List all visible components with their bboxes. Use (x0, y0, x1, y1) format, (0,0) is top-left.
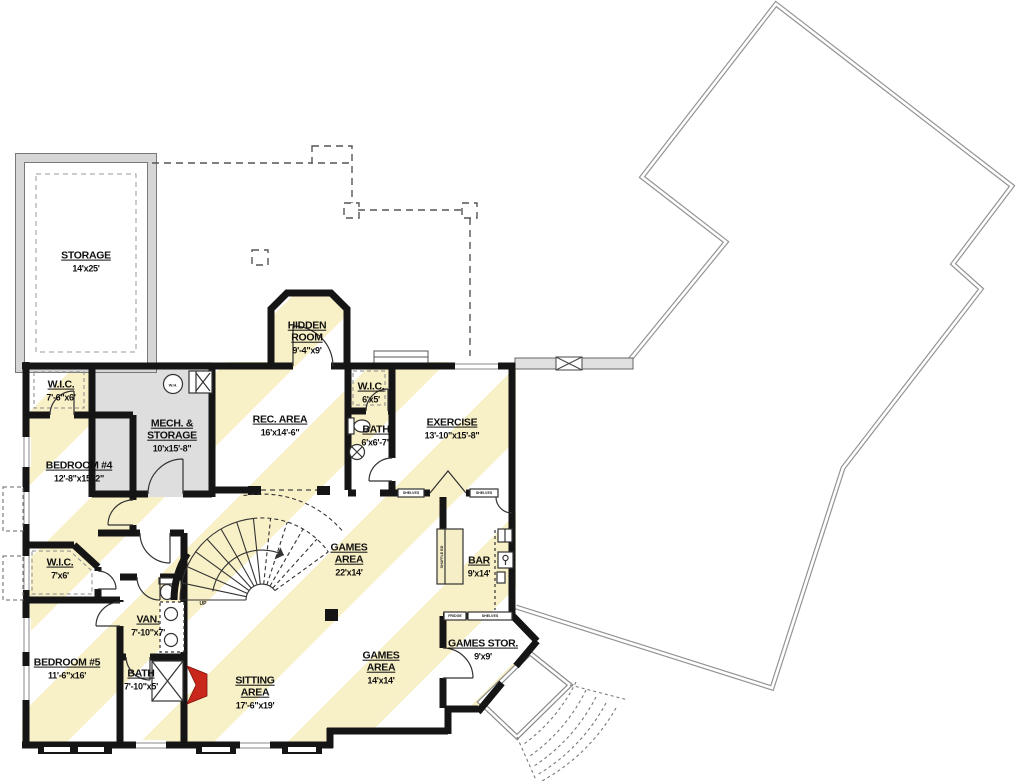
room-label-bath-2: BATH7'-10"x5' (124, 669, 158, 692)
room-dimensions: 13'-10"x15'-8" (425, 430, 480, 440)
room-dimensions: 9'x14' (468, 568, 491, 578)
room-label-bath-1: BATH6'x6'-7" (361, 425, 390, 448)
room-dimensions: 14'x14' (362, 675, 399, 685)
annotation-shelves-3: SHELVES (482, 614, 499, 618)
room-dimensions: 9'x9' (448, 651, 518, 661)
room-label-mech-storage: MECH. & STORAGE10'x15'-8" (147, 419, 197, 454)
room-label-wic-1: W.I.C.7'-6"x6' (46, 380, 75, 403)
room-label-rec-area: REC. AREA16'x14'-6" (253, 415, 308, 438)
room-dimensions: 10'x15'-8" (147, 443, 197, 453)
room-name: HIDDEN ROOM (288, 321, 326, 345)
room-dimensions: 17'-6"x19' (235, 700, 274, 710)
room-label-wic-2: W.I.C.6'x5' (358, 382, 385, 405)
room-name: BAR (468, 556, 491, 568)
room-name: MECH. & STORAGE (147, 419, 197, 443)
room-name: GAMES AREA (330, 543, 367, 567)
room-dimensions: 22'x14' (330, 567, 367, 577)
room-dimensions: 11'-6"x16' (34, 670, 100, 680)
room-label-games-area-2: GAMES AREA14'x14' (362, 651, 399, 686)
room-label-hidden-room: HIDDEN ROOM9'-4"x9' (288, 321, 326, 356)
room-labels-layer: STORAGE14'x25'HIDDEN ROOM9'-4"x9'W.I.C.7… (0, 0, 1024, 784)
room-name: BATH (124, 669, 158, 681)
room-name: GAMES STOR. (448, 639, 518, 651)
room-dimensions: 12'-8"x15'-2" (46, 473, 112, 483)
room-name: STORAGE (61, 251, 111, 263)
annotation-fridge: FRIDGE (448, 614, 462, 618)
room-name: BATH (361, 425, 390, 437)
room-name: GAMES AREA (362, 651, 399, 675)
room-label-storage: STORAGE14'x25' (61, 251, 111, 274)
room-dimensions: 7'-6"x6' (46, 392, 75, 402)
room-label-sitting-area: SITTING AREA17'-6"x19' (235, 676, 274, 711)
annotation-shuffleboard: SHUFFLE BD (440, 546, 444, 569)
room-name: W.I.C. (46, 380, 75, 392)
room-label-games-stor: GAMES STOR.9'x9' (448, 639, 518, 662)
room-label-bar: BAR9'x14' (468, 556, 491, 579)
annotation-water-heater: W.H. (169, 383, 178, 388)
room-dimensions: 6'x5' (358, 394, 385, 404)
room-dimensions: 7'-10"x7' (131, 627, 165, 637)
room-name: W.I.C. (358, 382, 385, 394)
room-label-exercise: EXERCISE13'-10"x15'-8" (425, 418, 480, 441)
room-label-wic-3: W.I.C.7'x6' (47, 558, 74, 581)
room-dimensions: 6'x6'-7" (361, 437, 390, 447)
room-label-van: VAN.7'-10"x7' (131, 615, 165, 638)
room-dimensions: 7'x6' (47, 570, 74, 580)
room-dimensions: 16'x14'-6" (253, 427, 308, 437)
floor-plan: STORAGE14'x25'HIDDEN ROOM9'-4"x9'W.I.C.7… (0, 0, 1024, 784)
room-dimensions: 14'x25' (61, 263, 111, 273)
room-name: W.I.C. (47, 558, 74, 570)
room-label-bedroom-4: BEDROOM #412'-8"x15'-2" (46, 461, 112, 484)
room-label-bedroom-5: BEDROOM #511'-6"x16' (34, 658, 100, 681)
room-name: SITTING AREA (235, 676, 274, 700)
room-name: VAN. (131, 615, 165, 627)
room-name: BEDROOM #5 (34, 658, 100, 670)
annotation-shelves-2: SHELVES (476, 491, 493, 495)
annotation-stair-up: UP (200, 601, 207, 607)
annotation-shelves-1: SHELVES (403, 491, 420, 495)
room-dimensions: 9'-4"x9' (288, 345, 326, 355)
room-name: EXERCISE (425, 418, 480, 430)
room-name: REC. AREA (253, 415, 308, 427)
room-dimensions: 7'-10"x5' (124, 681, 158, 691)
room-label-games-area-1: GAMES AREA22'x14' (330, 543, 367, 578)
room-name: BEDROOM #4 (46, 461, 112, 473)
